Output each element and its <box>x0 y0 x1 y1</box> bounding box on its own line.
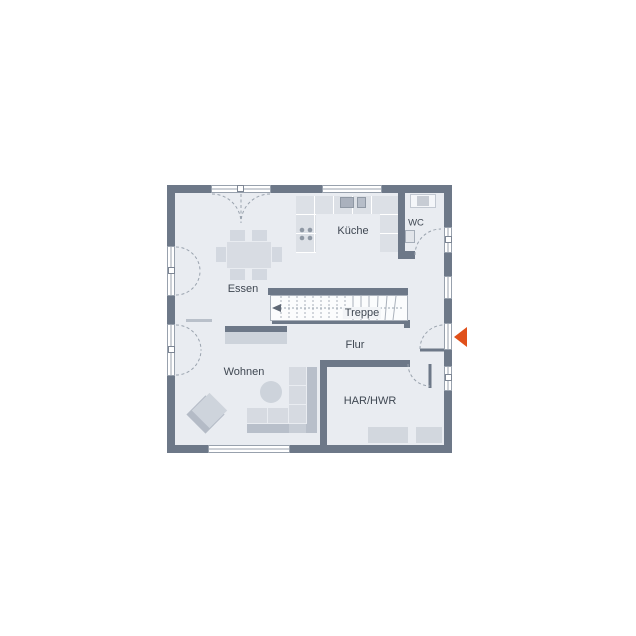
room-label-living: Wohnen <box>224 366 265 378</box>
stairs-direction-arrow <box>272 304 281 312</box>
room-label-kitchen: Küche <box>337 225 368 237</box>
room-label-wc: WC <box>408 218 424 229</box>
room-label-stairs: Treppe <box>343 307 381 319</box>
door-handle <box>237 185 244 192</box>
window-kitchen <box>322 185 382 193</box>
floor-plan: Küche WC Essen Treppe Flur Wohnen HAR/HW… <box>0 0 636 636</box>
room-label-utility: HAR/HWR <box>344 395 397 407</box>
window-living <box>208 445 290 453</box>
room-label-dining: Essen <box>228 283 259 295</box>
door-handle <box>168 267 175 274</box>
room-label-hall: Flur <box>346 339 365 351</box>
entrance-door <box>444 323 452 350</box>
window-handle <box>445 236 452 243</box>
entrance-arrow-icon <box>454 327 467 347</box>
door-handle <box>168 346 175 353</box>
window-handle <box>445 374 452 381</box>
window-hall <box>444 276 452 299</box>
toilet-cistern <box>417 196 429 206</box>
plan-linework <box>0 0 636 636</box>
